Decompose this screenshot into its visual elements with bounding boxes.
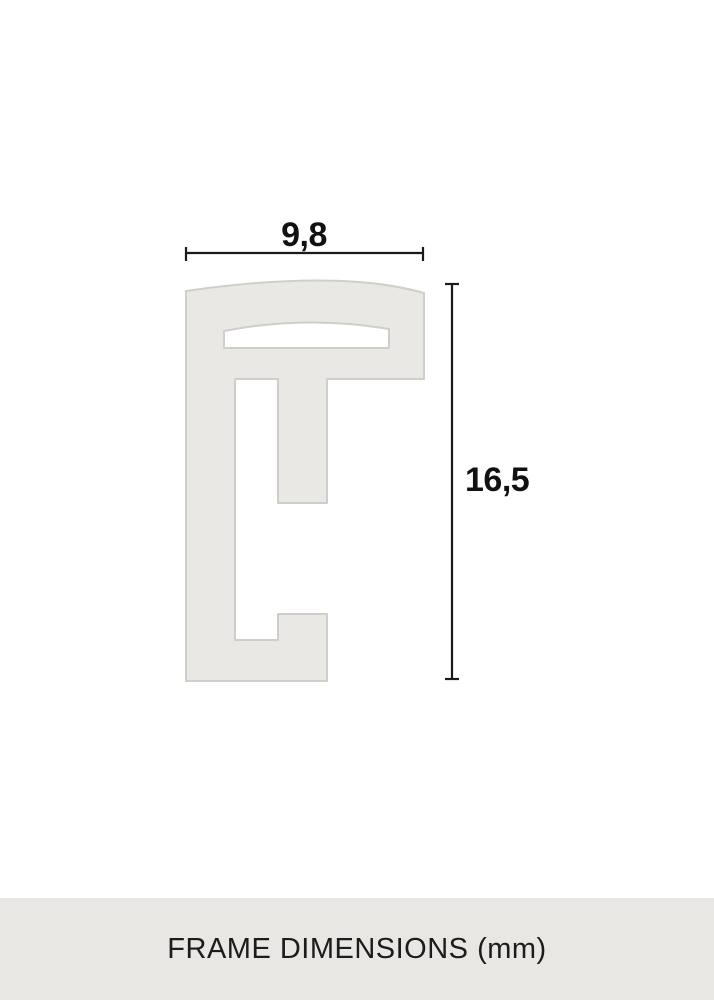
frame-profile-shape (186, 280, 424, 681)
width-dimension: 9,8 (186, 216, 423, 261)
caption-label: FRAME DIMENSIONS (mm) (167, 933, 546, 966)
page: 9,8 16,5 FRAME DIMENSIONS (mm) (0, 0, 714, 1000)
frame-profile-drawing: 9,8 16,5 (0, 0, 714, 1000)
height-dimension-label: 16,5 (465, 461, 529, 499)
height-dimension: 16,5 (445, 284, 529, 679)
caption-bar: FRAME DIMENSIONS (mm) (0, 898, 714, 1000)
width-dimension-label: 9,8 (281, 216, 327, 254)
